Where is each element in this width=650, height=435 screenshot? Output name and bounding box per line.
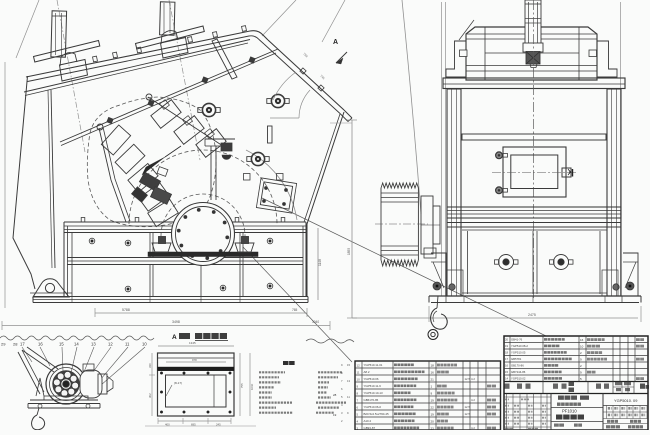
- svg-text:4.2: 4.2: [471, 426, 475, 430]
- svg-text:11: 11: [125, 342, 130, 347]
- svg-text:A8.2: A8.2: [364, 370, 370, 374]
- svg-text:GB6170-86: GB6170-86: [364, 398, 379, 402]
- svg-text:GB5781: GB5781: [511, 357, 522, 361]
- svg-text:7: 7: [357, 398, 359, 402]
- svg-text:YGP510.02: YGP510.02: [511, 377, 526, 381]
- svg-text:765: 765: [292, 308, 298, 312]
- svg-text:12.5: 12.5: [465, 405, 471, 409]
- svg-text:YGP510.06: YGP510.06: [364, 377, 379, 381]
- svg-text:14: 14: [505, 377, 509, 381]
- svg-text:3498: 3498: [172, 320, 180, 324]
- svg-text:16: 16: [38, 342, 43, 347]
- svg-text:15: 15: [59, 342, 64, 347]
- svg-text:12: 12: [108, 342, 113, 347]
- svg-text:4.2: 4.2: [471, 377, 475, 381]
- svg-text:2: 2: [341, 419, 343, 423]
- svg-text:3: 3: [341, 411, 343, 415]
- svg-text:9: 9: [341, 363, 343, 367]
- svg-text:17: 17: [20, 342, 25, 347]
- svg-text:A10.2: A10.2: [364, 419, 372, 423]
- svg-text:12: 12: [357, 363, 361, 367]
- svg-text:2475: 2475: [528, 313, 536, 317]
- svg-text:YGP510.08-2: YGP510.08-2: [511, 344, 528, 348]
- svg-text:758: 758: [302, 52, 309, 59]
- svg-text:7: 7: [341, 379, 343, 383]
- svg-text:1855: 1855: [347, 248, 351, 255]
- svg-text:5: 5: [580, 377, 582, 381]
- svg-text:20: 20: [431, 419, 435, 423]
- svg-text:9: 9: [580, 357, 582, 361]
- svg-text:9: 9: [580, 370, 582, 374]
- svg-text:16: 16: [431, 370, 435, 374]
- svg-text:1: 1: [431, 384, 433, 388]
- svg-text:9: 9: [357, 384, 359, 388]
- svg-text:20: 20: [505, 338, 509, 342]
- svg-text:12.5: 12.5: [465, 412, 471, 416]
- svg-text:4: 4: [357, 419, 359, 423]
- svg-text:YGP510.10-13: YGP510.10-13: [364, 391, 384, 395]
- svg-text:(8-17): (8-17): [174, 381, 182, 385]
- svg-text:22: 22: [431, 405, 435, 409]
- svg-text:18: 18: [431, 363, 435, 367]
- svg-text:19: 19: [505, 344, 509, 348]
- svg-text:23: 23: [431, 426, 435, 430]
- svg-text:16: 16: [580, 338, 584, 342]
- svg-text:19: 19: [333, 413, 337, 417]
- svg-text:28: 28: [13, 342, 18, 347]
- svg-text:8: 8: [357, 391, 359, 395]
- svg-text:5788: 5788: [122, 308, 130, 312]
- svg-text:18: 18: [505, 351, 509, 355]
- svg-text:YGP5010. 09: YGP5010. 09: [614, 398, 637, 403]
- svg-text:19: 19: [431, 398, 435, 402]
- svg-text:B20.5x2.5x2790-45: B20.5x2.5x2790-45: [364, 412, 389, 416]
- svg-text:2: 2: [580, 364, 582, 368]
- svg-text:15: 15: [347, 363, 351, 367]
- svg-text:28: 28: [333, 393, 337, 397]
- svg-text:29: 29: [1, 342, 6, 347]
- svg-text:13: 13: [91, 342, 96, 347]
- svg-text:16: 16: [505, 364, 509, 368]
- svg-text:5: 5: [357, 412, 359, 416]
- svg-text:YGP510.11-01: YGP510.11-01: [364, 363, 383, 367]
- svg-text:19: 19: [431, 412, 435, 416]
- svg-text:1148: 1148: [318, 259, 322, 266]
- svg-text:11: 11: [347, 395, 350, 399]
- svg-text:10: 10: [580, 344, 584, 348]
- svg-text:GB7244-86: GB7244-86: [511, 370, 526, 374]
- svg-text:746: 746: [319, 74, 326, 81]
- svg-text:978: 978: [192, 358, 197, 362]
- svg-text:1345: 1345: [189, 341, 196, 345]
- svg-text:1010: 1010: [250, 383, 254, 390]
- svg-text:10: 10: [357, 377, 361, 381]
- svg-text:6: 6: [357, 405, 359, 409]
- svg-text:302: 302: [148, 393, 152, 398]
- svg-text:5: 5: [341, 395, 343, 399]
- svg-text:GB170-86: GB170-86: [511, 364, 524, 368]
- svg-text:GB41-76: GB41-76: [511, 338, 523, 342]
- svg-text:A: A: [172, 334, 177, 341]
- svg-text:YGP510.05: YGP510.05: [511, 351, 526, 355]
- svg-text:12.5: 12.5: [465, 377, 471, 381]
- svg-text:4.2: 4.2: [471, 398, 475, 402]
- svg-text:755: 755: [240, 383, 244, 388]
- svg-text:2: 2: [580, 351, 582, 355]
- svg-text:330: 330: [148, 363, 152, 368]
- svg-text:6: 6: [341, 387, 343, 391]
- svg-text:9: 9: [431, 391, 433, 395]
- svg-text:GB93-87: GB93-87: [364, 426, 376, 430]
- svg-text:YGP510.06-0: YGP510.06-0: [364, 405, 382, 409]
- svg-text:8: 8: [341, 371, 343, 375]
- svg-text:21: 21: [431, 377, 435, 381]
- svg-text:17: 17: [505, 357, 509, 361]
- svg-text:3040: 3040: [312, 320, 319, 324]
- svg-text:15: 15: [505, 370, 509, 374]
- svg-text:YGP510.11-6: YGP510.11-6: [364, 384, 382, 388]
- svg-text:PF1010: PF1010: [562, 409, 577, 414]
- svg-text:11: 11: [357, 370, 360, 374]
- svg-text:10: 10: [142, 342, 147, 347]
- svg-text:13: 13: [347, 379, 351, 383]
- svg-text:14: 14: [74, 342, 79, 347]
- svg-text:9: 9: [347, 411, 349, 415]
- svg-text:A: A: [333, 39, 338, 46]
